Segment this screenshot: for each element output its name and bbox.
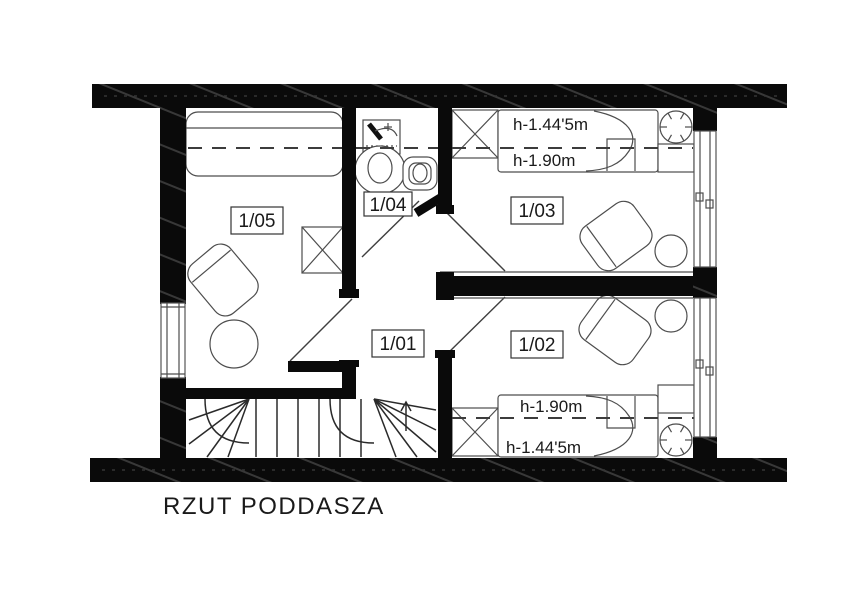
staircase bbox=[189, 399, 436, 457]
bedroom-103-furniture bbox=[452, 110, 694, 276]
height-label-103-upper: h-1.44'5m bbox=[513, 115, 588, 134]
stair-enclosure-wall-right bbox=[438, 352, 452, 458]
room-label-102: 1/02 bbox=[519, 335, 556, 356]
height-label-102-lower: h-1.44'5m bbox=[506, 438, 581, 457]
bed-105 bbox=[186, 112, 343, 176]
washbasin-bowl bbox=[355, 146, 405, 194]
armchair-102 bbox=[574, 290, 656, 370]
door-swing-105 bbox=[290, 299, 352, 361]
room-label-101: 1/01 bbox=[380, 334, 417, 355]
stair-winder-fan-left bbox=[189, 399, 249, 457]
exterior-wall-left-upper bbox=[160, 108, 186, 304]
door-swing-103 bbox=[446, 212, 505, 271]
door-jamb-mid-wall bbox=[436, 272, 454, 300]
armchair-105 bbox=[183, 239, 264, 321]
bedroom-105-furniture bbox=[183, 112, 343, 368]
nightstand-102 bbox=[658, 385, 694, 413]
door-leaf-105 bbox=[288, 361, 342, 372]
door-swing-102 bbox=[446, 297, 505, 355]
plant-103 bbox=[660, 111, 692, 143]
round-table-102 bbox=[655, 300, 687, 332]
plan-title: RZUT PODDASZA bbox=[163, 493, 385, 520]
stair-winder-fan-right bbox=[330, 399, 436, 457]
interior-wall-105-104 bbox=[342, 108, 356, 298]
round-table-105 bbox=[210, 320, 258, 368]
exterior-wall-right-top-block bbox=[693, 108, 717, 131]
interior-wall-104-103 bbox=[438, 108, 452, 206]
exterior-wall-right-bottom-block bbox=[693, 437, 717, 459]
room-label-103: 1/03 bbox=[519, 201, 556, 222]
window-right-upper bbox=[694, 131, 716, 267]
floor-plan-canvas: 1/05 1/04 1/03 1/01 1/02 h-1.44'5m h-1.9… bbox=[0, 0, 850, 600]
room-labels: 1/05 1/04 1/03 1/01 1/02 bbox=[231, 192, 563, 358]
bathroom-104-fixtures bbox=[355, 120, 437, 194]
door-jamb-102 bbox=[435, 350, 455, 358]
toilet bbox=[403, 157, 437, 190]
window-right-lower bbox=[694, 298, 716, 437]
height-label-102-upper: h-1.90m bbox=[520, 397, 582, 416]
exterior-wall-right-mid-pier bbox=[693, 267, 717, 298]
height-label-103-lower: h-1.90m bbox=[513, 151, 575, 170]
window-left bbox=[161, 303, 185, 378]
chimney-hatch-box-105 bbox=[302, 227, 343, 273]
room-label-105: 1/05 bbox=[239, 211, 276, 232]
room-label-104: 1/04 bbox=[370, 195, 407, 216]
armchair-103 bbox=[575, 196, 657, 276]
door-jamb-103 bbox=[436, 205, 454, 214]
floor-plan-drawing: 1/05 1/04 1/03 1/01 1/02 h-1.44'5m h-1.9… bbox=[0, 0, 850, 600]
plant-102 bbox=[660, 424, 692, 456]
chimney-hatch-box-102 bbox=[452, 408, 498, 456]
stair-enclosure-wall-top bbox=[162, 388, 356, 399]
bedroom-102-furniture bbox=[452, 290, 694, 457]
door-jamb-104 bbox=[339, 289, 359, 298]
round-table-103 bbox=[655, 235, 687, 267]
chimney-hatch-box-103 bbox=[452, 110, 498, 158]
door-post-cap-105 bbox=[339, 360, 359, 367]
interior-wall-103-102 bbox=[440, 276, 693, 296]
